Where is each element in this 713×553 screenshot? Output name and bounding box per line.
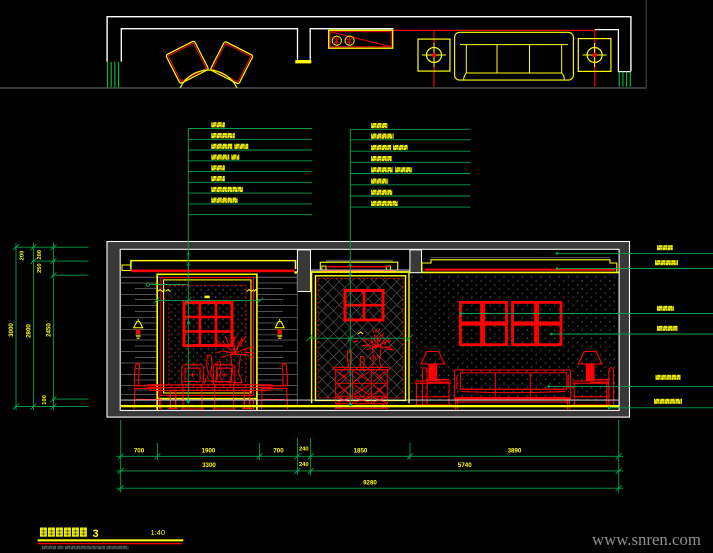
svg-text:1:40: 1:40 bbox=[151, 528, 166, 537]
svg-text:1900: 1900 bbox=[202, 448, 216, 455]
svg-text:2800: 2800 bbox=[26, 324, 33, 338]
svg-text:240: 240 bbox=[299, 462, 309, 468]
svg-text:700: 700 bbox=[273, 448, 284, 455]
svg-text:1850: 1850 bbox=[354, 448, 368, 455]
svg-text:700: 700 bbox=[134, 448, 145, 455]
svg-text:9280: 9280 bbox=[363, 479, 377, 486]
svg-text:100: 100 bbox=[42, 395, 48, 405]
svg-text:250: 250 bbox=[37, 263, 43, 273]
svg-text:200: 200 bbox=[37, 250, 43, 260]
svg-text:200: 200 bbox=[20, 251, 26, 261]
svg-text:3000: 3000 bbox=[8, 323, 15, 337]
svg-text:2450: 2450 bbox=[46, 323, 53, 337]
svg-text:240: 240 bbox=[299, 447, 309, 453]
svg-text:www.snren.com: www.snren.com bbox=[592, 530, 701, 549]
svg-text:3300: 3300 bbox=[202, 462, 216, 469]
svg-text:5740: 5740 bbox=[458, 462, 472, 469]
svg-text:3: 3 bbox=[93, 528, 99, 540]
svg-text:3890: 3890 bbox=[508, 448, 522, 455]
